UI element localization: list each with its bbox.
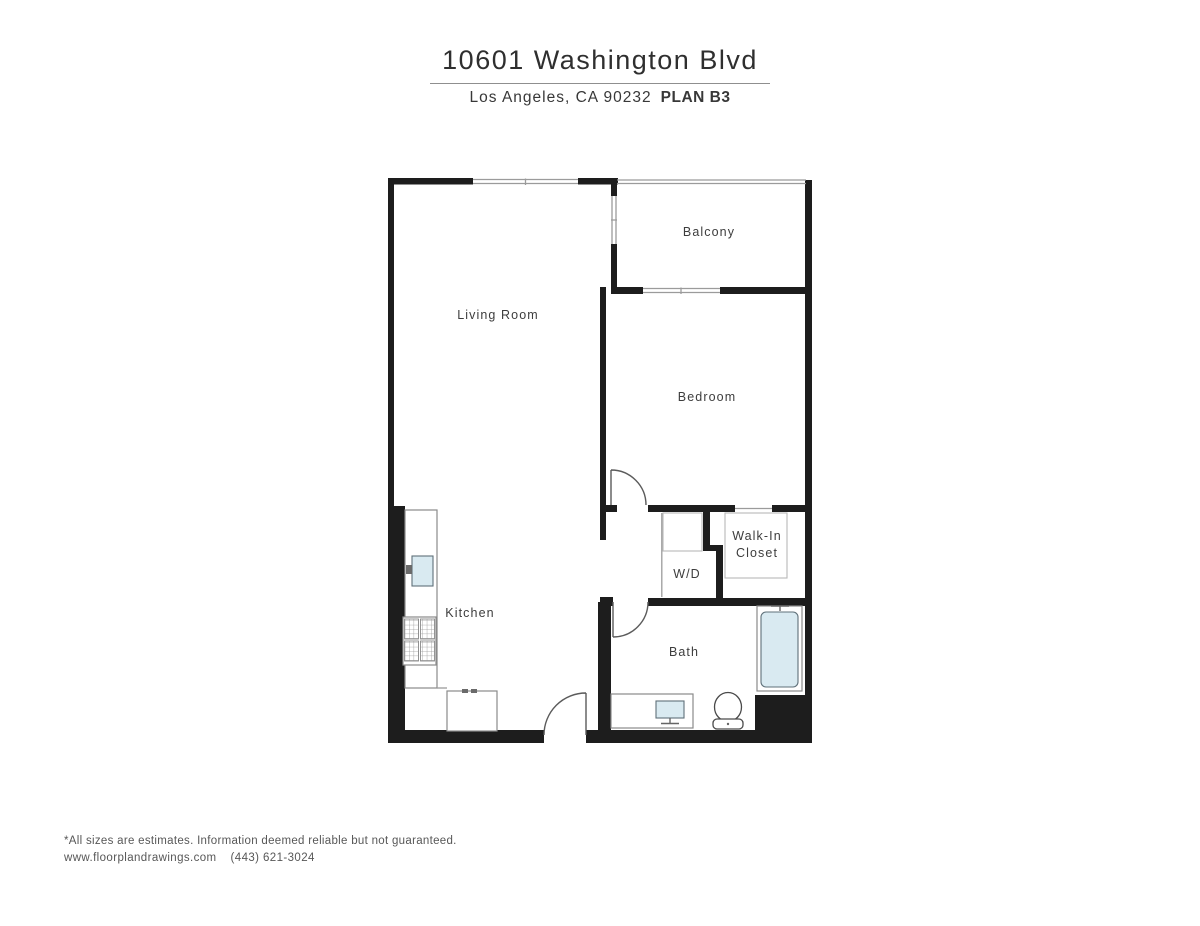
bedroom-top-wall-left bbox=[611, 287, 643, 294]
walk-in-closet-label-line1: Walk-In bbox=[732, 529, 782, 543]
bath-top-wall bbox=[648, 598, 805, 606]
bath-door bbox=[613, 602, 648, 637]
living-room-window bbox=[473, 179, 578, 186]
floor-plan-drawing: Living Room Balcony Bedroom Walk-In Clos… bbox=[0, 0, 1200, 926]
kitchen-bath-wall bbox=[598, 602, 611, 742]
balcony-left-wall-bottom bbox=[611, 244, 617, 291]
stove-burner-icon bbox=[421, 641, 435, 661]
balcony-railing bbox=[617, 180, 806, 184]
washer-dryer-unit bbox=[663, 513, 702, 551]
website-text: www.floorplandrawings.com bbox=[64, 852, 217, 864]
kitchen-label: Kitchen bbox=[445, 606, 494, 620]
toilet-flush-icon bbox=[727, 723, 729, 725]
contact-line: www.floorplandrawings.com(443) 621-3024 bbox=[64, 852, 457, 864]
bath-label: Bath bbox=[669, 645, 699, 659]
balcony-left-wall-top bbox=[611, 178, 617, 196]
bottom-wall-left bbox=[388, 730, 544, 743]
bottom-wall-middle bbox=[586, 730, 757, 743]
sink-faucet-icon bbox=[406, 565, 412, 574]
livingroom-bedroom-wall bbox=[600, 287, 606, 540]
kitchen-fixtures bbox=[403, 510, 497, 731]
toilet-bowl-icon bbox=[715, 693, 742, 722]
living-room-label: Living Room bbox=[457, 308, 539, 322]
right-wall bbox=[805, 180, 812, 743]
bath-sink bbox=[656, 701, 684, 718]
stove-burner-icon bbox=[405, 619, 419, 639]
bedroom-bottom-wall-a bbox=[600, 505, 617, 512]
bathtub-basin bbox=[761, 612, 798, 687]
left-wall-upper bbox=[388, 178, 394, 510]
plan-footer: *All sizes are estimates. Information de… bbox=[64, 835, 457, 864]
balcony-label: Balcony bbox=[683, 225, 735, 239]
stove-burner-icon bbox=[421, 619, 435, 639]
bedroom-window bbox=[643, 288, 720, 295]
walls bbox=[388, 178, 812, 743]
wd-label: W/D bbox=[673, 567, 701, 581]
kitchen-island-counter bbox=[447, 691, 497, 731]
bottom-right-wall-block bbox=[755, 695, 812, 743]
balcony-side-window bbox=[611, 196, 617, 244]
island-faucet-icon bbox=[462, 689, 468, 693]
bedroom-top-wall-right bbox=[720, 287, 805, 294]
disclaimer-text: *All sizes are estimates. Information de… bbox=[64, 835, 457, 847]
phone-text: (443) 621-3024 bbox=[231, 852, 315, 864]
bedroom-door bbox=[611, 470, 646, 505]
wd-closet-wall-lower bbox=[716, 545, 723, 600]
walk-in-closet-label-line2: Closet bbox=[736, 546, 778, 560]
bedroom-bottom-wall-c bbox=[772, 505, 805, 512]
stove-burner-icon bbox=[405, 641, 419, 661]
bedroom-label: Bedroom bbox=[678, 390, 736, 404]
bedroom-bottom-wall-b bbox=[648, 505, 735, 512]
top-wall-left bbox=[388, 178, 473, 185]
kitchen-sink bbox=[412, 556, 433, 586]
entry-door bbox=[544, 693, 586, 735]
island-faucet-icon bbox=[471, 689, 477, 693]
